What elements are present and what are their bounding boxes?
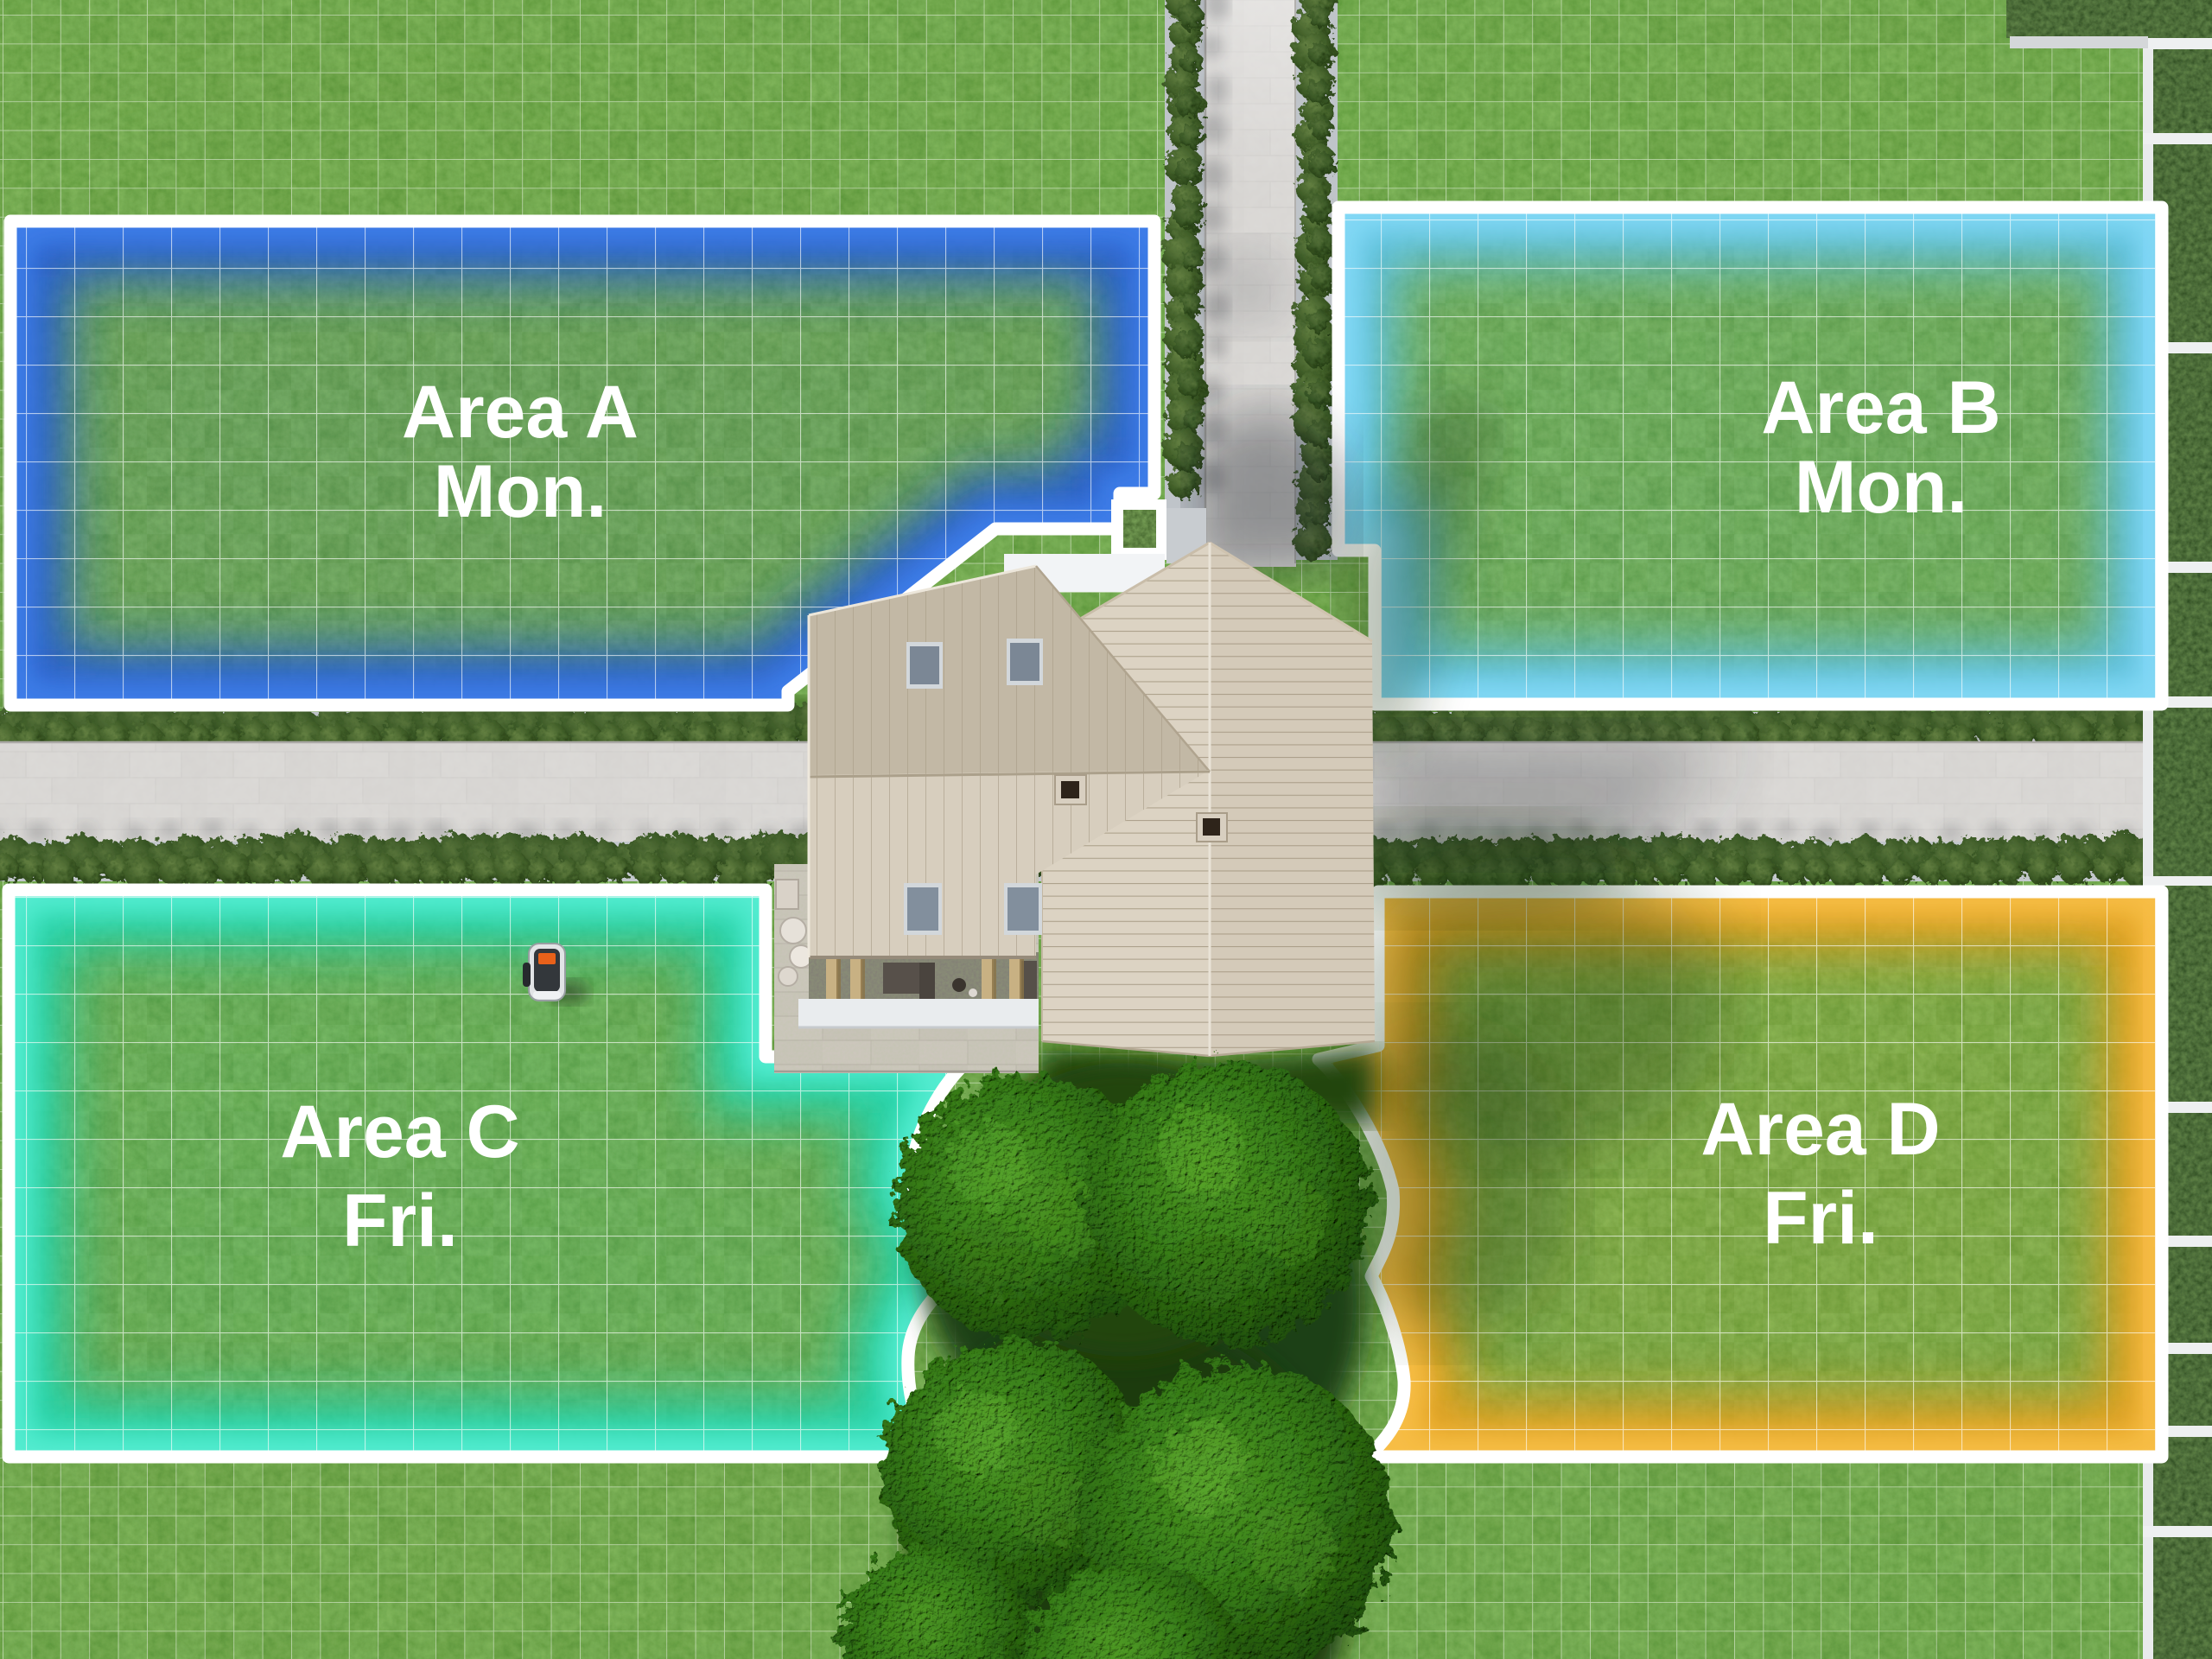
svg-text:Fri.: Fri. (1763, 1177, 1878, 1260)
svg-text:Area C: Area C (280, 1090, 519, 1173)
svg-text:Area B: Area B (1761, 366, 2000, 449)
svg-text:Mon.: Mon. (1795, 446, 1968, 529)
svg-text:Mon.: Mon. (434, 450, 607, 533)
svg-text:Fri.: Fri. (342, 1179, 458, 1262)
svg-text:Area D: Area D (1700, 1088, 1940, 1171)
svg-text:Area A: Area A (402, 371, 639, 454)
